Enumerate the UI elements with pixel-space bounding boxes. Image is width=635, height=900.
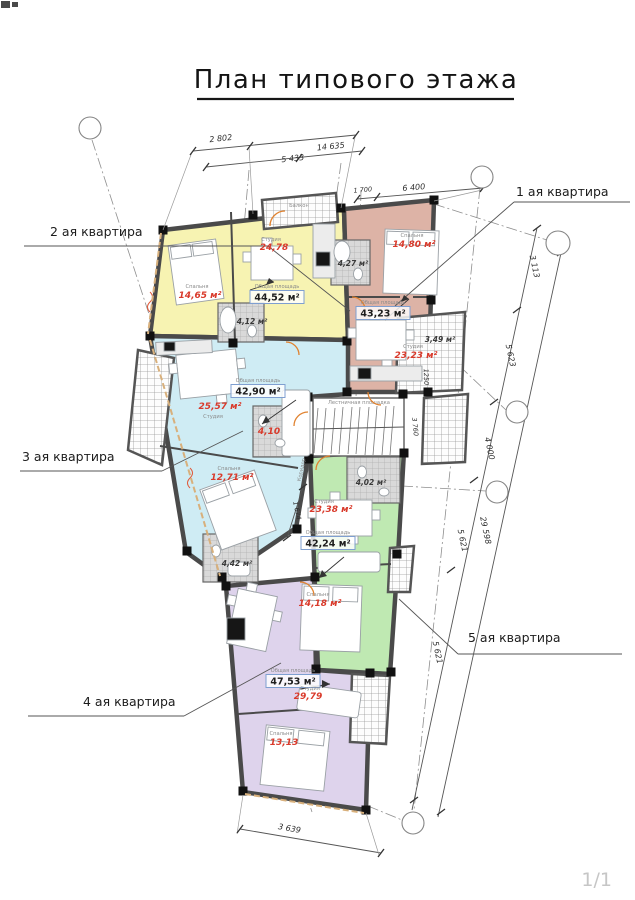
- svg-text:1 700: 1 700: [353, 185, 372, 195]
- apt2-total: 44,52 м²: [254, 293, 299, 304]
- svg-text:Общая площадь: Общая площадь: [306, 530, 351, 536]
- svg-text:Студия: Студия: [203, 414, 223, 420]
- apt1-studio-area: 23,23 м²: [395, 351, 438, 361]
- apt3-bath-area: 4,10: [257, 427, 280, 437]
- drawing-page: План типового этажа Лестничная площадка: [0, 0, 635, 900]
- corner-artifact: [1, 1, 18, 8]
- svg-text:Спальня: Спальня: [217, 466, 240, 472]
- svg-text:5 621: 5 621: [456, 528, 470, 552]
- svg-text:3 760: 3 760: [410, 417, 420, 436]
- apt1-bedroom-area: 14,80 м²: [393, 240, 436, 250]
- apt1-balcony-area: 3,49 м²: [425, 335, 456, 344]
- svg-text:Спальня: Спальня: [400, 233, 423, 239]
- svg-text:5 621: 5 621: [431, 640, 445, 664]
- svg-text:5 433: 5 433: [281, 153, 305, 164]
- svg-text:Общая площадь: Общая площадь: [271, 668, 316, 674]
- svg-text:Спальня: Спальня: [306, 592, 329, 598]
- apt3-total: 42,90 м²: [235, 387, 280, 398]
- callout-apartment-4: 4 ая квартира: [83, 694, 176, 709]
- svg-text:Спальня: Спальня: [269, 731, 292, 737]
- apt1-bath-area: 4,27 м²: [338, 259, 369, 268]
- apt5-studio-area: 23,38 м²: [310, 505, 353, 515]
- apt3-bath2-area: 4,42 м²: [222, 559, 253, 568]
- page-number: 1/1: [581, 869, 612, 891]
- apt4-studio-area: 29,79: [294, 692, 322, 702]
- stair-core: Лестничная площадка: [313, 398, 404, 456]
- floor-plan-canvas: План типового этажа Лестничная площадка: [0, 0, 635, 900]
- svg-text:Общая площадь: Общая площадь: [236, 378, 281, 384]
- apt2-studio-area: 24,78: [260, 243, 288, 253]
- apt5-bedroom-area: 14,18 м²: [299, 599, 342, 609]
- svg-text:14 635: 14 635: [316, 141, 345, 153]
- apt3-studio-area: 25,57 м²: [199, 402, 242, 412]
- svg-text:1250: 1250: [422, 369, 431, 386]
- svg-text:Общая площадь: Общая площадь: [361, 300, 406, 306]
- page-title: План типового этажа: [194, 65, 519, 95]
- apt2-bedroom-area: 14,65 м²: [179, 291, 222, 301]
- svg-text:Студия: Студия: [403, 344, 423, 350]
- apt2-bath-area: 4,12 м²: [237, 317, 268, 326]
- svg-text:29 598: 29 598: [478, 516, 493, 545]
- apt3-bedroom-area: 12,71 м²: [211, 473, 254, 483]
- svg-text:5 623: 5 623: [504, 343, 518, 367]
- callout-apartment-5: 5 ая квартира: [468, 630, 561, 645]
- apt1-total: 43,23 м²: [360, 309, 405, 320]
- apt5-bath-area: 4,02 м²: [356, 478, 387, 487]
- callout-apartment-2: 2 ая квартира: [50, 224, 143, 239]
- balcony-label: Балкон: [289, 203, 309, 209]
- balcony-stair: [422, 394, 468, 464]
- callout-apartment-3: 3 ая квартира: [22, 449, 115, 464]
- svg-text:Спальня: Спальня: [185, 284, 208, 290]
- svg-text:Общая площадь: Общая площадь: [255, 284, 300, 290]
- svg-text:2 802: 2 802: [209, 133, 233, 144]
- svg-text:6 400: 6 400: [402, 182, 426, 193]
- svg-text:3 113: 3 113: [528, 254, 542, 278]
- callout-apartment-1: 1 ая квартира: [516, 184, 609, 199]
- apt4-bedroom-area: 13,13: [270, 738, 298, 748]
- svg-text:3 639: 3 639: [277, 822, 301, 835]
- apt5-total: 42,24 м²: [305, 539, 350, 550]
- svg-text:4 000: 4 000: [483, 436, 497, 460]
